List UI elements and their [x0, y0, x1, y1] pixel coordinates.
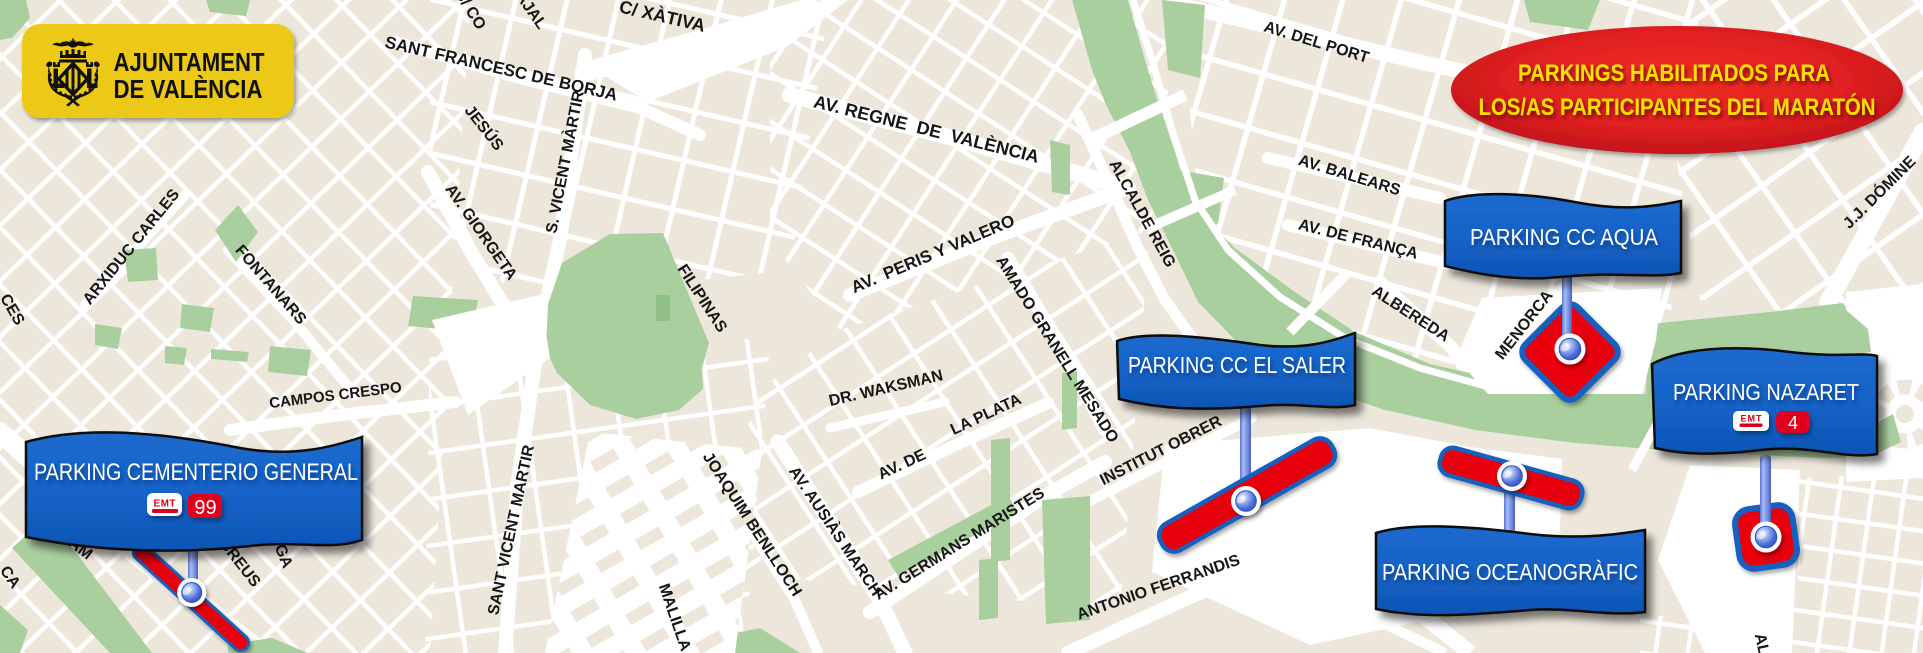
svg-text:99: 99: [194, 497, 216, 519]
svg-text:PARKINGS HABILITADOS PARA: PARKINGS HABILITADOS PARA: [1518, 60, 1830, 87]
svg-text:DE VALÈNCIA: DE VALÈNCIA: [114, 74, 263, 104]
svg-text:PARKING OCEANOGRÀFIC: PARKING OCEANOGRÀFIC: [1382, 559, 1638, 585]
svg-text:PARKING NAZARET: PARKING NAZARET: [1673, 379, 1859, 405]
svg-text:AJUNTAMENT: AJUNTAMENT: [114, 47, 265, 77]
svg-text:PARKING CEMENTERIO GENERAL: PARKING CEMENTERIO GENERAL: [34, 459, 358, 486]
svg-text:EMT: EMT: [154, 499, 176, 510]
svg-text:LOS/AS PARTICIPANTES DEL MARAT: LOS/AS PARTICIPANTES DEL MARATÓN: [1479, 93, 1876, 121]
svg-text:AL: AL: [1751, 632, 1772, 653]
svg-text:EMT: EMT: [1741, 414, 1763, 424]
svg-text:PARKING CC EL SALER: PARKING CC EL SALER: [1128, 352, 1346, 378]
svg-text:4: 4: [1788, 413, 1798, 433]
svg-text:PARKING CC AQUA: PARKING CC AQUA: [1470, 224, 1659, 250]
